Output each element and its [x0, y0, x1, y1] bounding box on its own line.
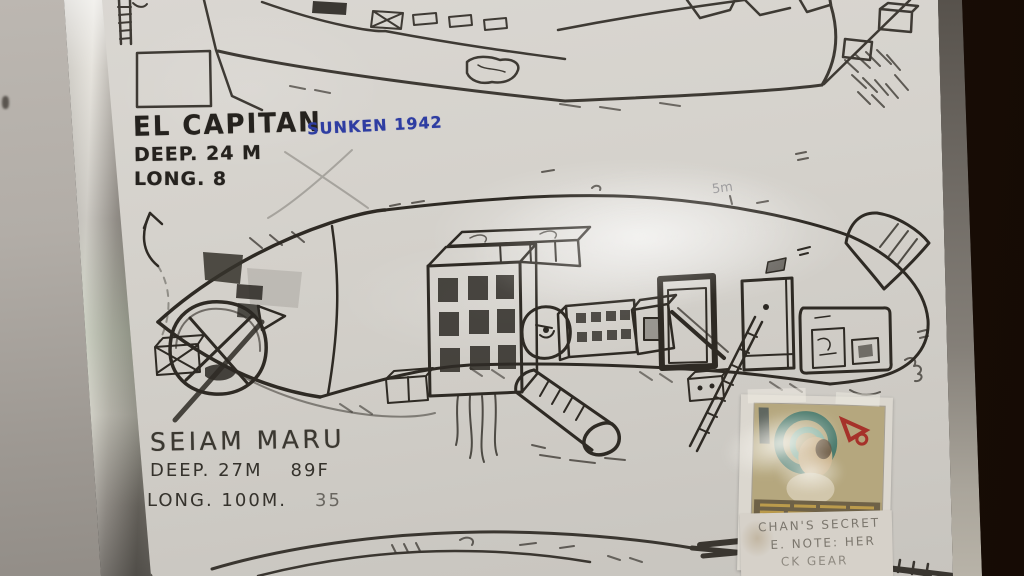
depth-annotation-5m: 5m — [711, 180, 734, 198]
clipping-photo — [752, 403, 885, 520]
wreck2-length-label: LONG. 100M.35 — [147, 490, 342, 511]
wreck1-name-label: EL CAPITAN — [133, 107, 323, 143]
wreck1-length-label: LONG. 8 — [134, 168, 227, 190]
wreck2-length-m: LONG. 100M. — [147, 490, 287, 511]
wreck1-depth-label: DEEP. 24 M — [134, 142, 262, 166]
whiteboard-photo: EL CAPITAN SUNKEN 1942 DEEP. 24 M LONG. … — [0, 0, 1024, 576]
wreck2-depth-label: DEEP. 27M89F — [150, 460, 330, 481]
wreck2-length-ft: 35 — [315, 490, 342, 511]
note-paper: CHAN'S SECRET E. NOTE: HER CK GEAR — [740, 510, 893, 576]
newspaper-clipping — [752, 403, 885, 520]
note-line-2: E. NOTE: HER — [770, 534, 876, 552]
wall-speck — [2, 96, 9, 109]
note-line-3: CK GEAR — [781, 553, 849, 569]
top-ship-sketch — [118, 0, 918, 110]
wreck2-depth-m: DEEP. 27M — [150, 460, 263, 481]
wreck2-name-label: SEIAM MARU — [150, 424, 345, 456]
note-line-1: CHAN'S SECRET — [758, 515, 881, 534]
taped-clipping-group: CHAN'S SECRET E. NOTE: HER CK GEAR — [734, 391, 904, 576]
tape-strip — [748, 388, 806, 404]
wreck2-depth-ft: 89F — [291, 460, 330, 481]
